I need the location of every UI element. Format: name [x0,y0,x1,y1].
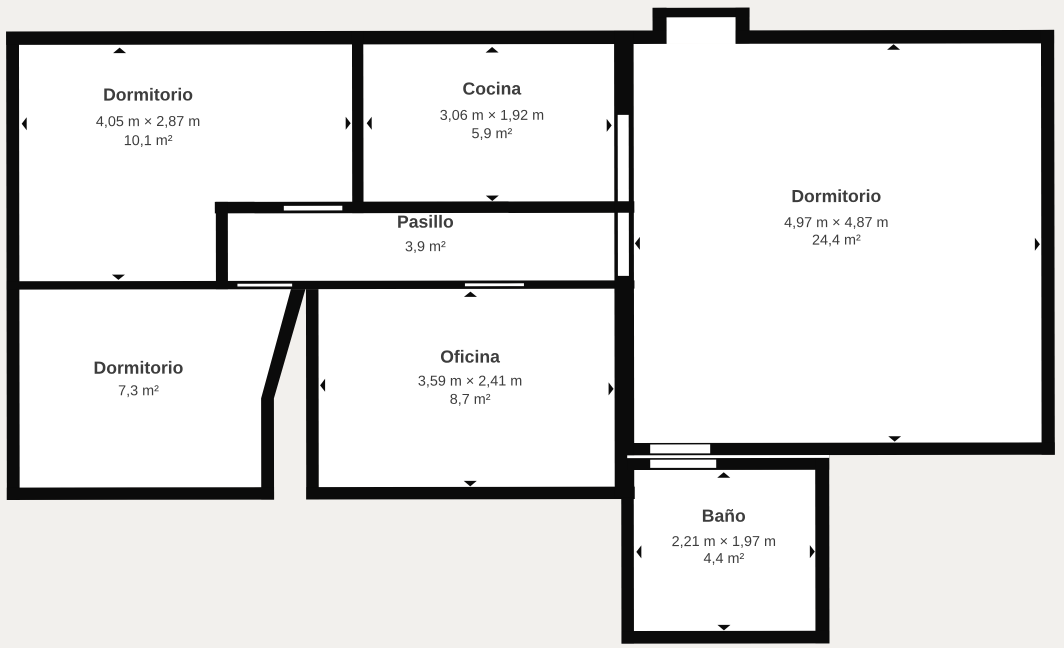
svg-text:3,59 m × 2,41 m: 3,59 m × 2,41 m [418,374,522,390]
svg-text:24,4 m²: 24,4 m² [812,233,861,249]
svg-text:Baño: Baño [702,506,746,526]
svg-text:Dormitorio: Dormitorio [103,85,193,105]
svg-text:Pasillo: Pasillo [397,212,454,232]
svg-text:3,9 m²: 3,9 m² [405,239,446,255]
svg-text:10,1 m²: 10,1 m² [124,133,173,149]
svg-text:2,21 m × 1,97 m: 2,21 m × 1,97 m [672,534,776,550]
svg-text:Oficina: Oficina [440,347,500,367]
svg-text:5,9 m²: 5,9 m² [472,126,513,142]
svg-text:7,3 m²: 7,3 m² [118,383,159,399]
svg-text:Dormitorio: Dormitorio [93,358,183,378]
svg-text:8,7 m²: 8,7 m² [450,392,491,408]
svg-text:Dormitorio: Dormitorio [791,186,881,206]
svg-text:4,05 m × 2,87 m: 4,05 m × 2,87 m [96,114,200,130]
svg-text:3,06 m × 1,92 m: 3,06 m × 1,92 m [440,108,544,124]
svg-text:4,97 m × 4,87 m: 4,97 m × 4,87 m [784,215,888,231]
svg-text:Cocina: Cocina [462,79,521,99]
svg-text:4,4 m²: 4,4 m² [703,551,744,567]
